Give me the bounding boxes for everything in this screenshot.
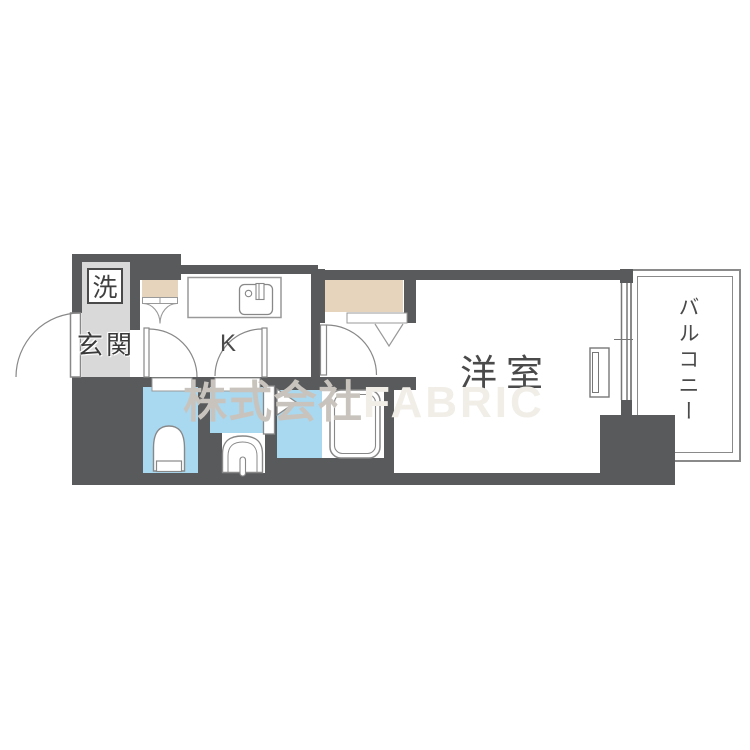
wall-closet-large-right	[404, 272, 416, 323]
wall-laundry-right	[130, 254, 140, 330]
wall-kitchen-top	[181, 265, 318, 274]
washbasin-inner	[228, 442, 257, 473]
wall-room-top	[318, 270, 633, 280]
wall-balcony-door-top-cap	[620, 269, 633, 283]
kitchen-door-leaf	[144, 328, 149, 377]
laundry-label: 洗	[92, 268, 117, 304]
wall-closet-small-top	[140, 254, 181, 280]
wall-left-upper	[72, 254, 82, 313]
wall-left-block	[72, 377, 143, 485]
kitchen-counter	[188, 278, 281, 318]
entrance-door-swing-arc	[16, 313, 80, 377]
window-sash-inner	[593, 353, 599, 393]
closet-large-fill	[322, 278, 403, 312]
wall-bath-bottom	[265, 458, 394, 475]
sliding-window-lines	[622, 283, 628, 400]
closet-large-fold-marker	[375, 324, 403, 346]
closet-small-door-right	[160, 298, 178, 304]
sink-faucet	[256, 284, 264, 300]
window-sash-outer	[590, 348, 609, 397]
closet-small-fill	[142, 279, 178, 297]
sink-drain	[245, 290, 251, 296]
washing-machine-space: 洗	[87, 268, 123, 304]
watermark-company-prefix: 株式会社	[183, 378, 363, 427]
wall-washroom-lower	[198, 433, 222, 473]
closet-large-door	[347, 313, 407, 323]
watermark-brand: FABRIC	[363, 378, 545, 427]
closet-small-door-left	[143, 298, 161, 304]
wall-bottom	[143, 473, 675, 485]
washbasin-outer	[223, 436, 263, 473]
kitchen-label: K	[220, 330, 236, 358]
closet-small-swing-arcs	[143, 304, 177, 324]
floor-plan-canvas: 洗 玄関 K 洋室 バルコニー 株式会社FABRIC	[0, 0, 750, 750]
wall-balcony-door-bottom-cap	[621, 400, 632, 416]
company-watermark: 株式会社FABRIC	[183, 366, 545, 430]
kitchen-sink	[240, 285, 273, 315]
balcony-label: バルコニー	[672, 296, 702, 446]
entrance-label: 玄関	[77, 325, 135, 362]
